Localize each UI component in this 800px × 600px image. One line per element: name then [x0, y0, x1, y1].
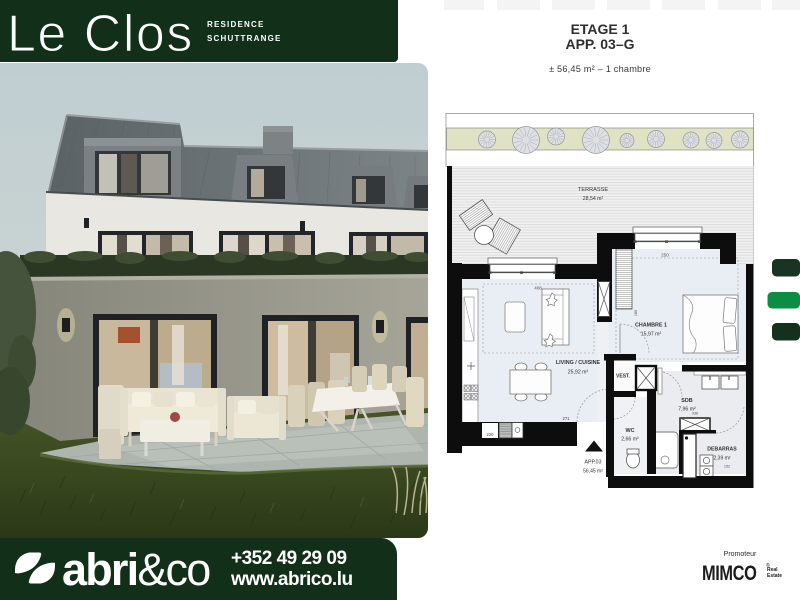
svg-text:220: 220: [487, 432, 495, 437]
svg-text:DEBARRAS: DEBARRAS: [707, 447, 737, 453]
svg-text:408: 408: [534, 286, 542, 291]
svg-text:TERRASSE: TERRASSE: [578, 187, 608, 193]
svg-text:SDB: SDB: [681, 398, 692, 404]
svg-text:APP.03: APP.03: [585, 460, 602, 466]
svg-text:CHAMBRE 1: CHAMBRE 1: [635, 323, 667, 329]
svg-text:VEST.: VEST.: [616, 374, 631, 380]
svg-text:28,54 m²: 28,54 m²: [583, 196, 604, 202]
svg-text:336: 336: [692, 412, 698, 416]
svg-text:15,97 m²: 15,97 m²: [641, 332, 662, 338]
svg-text:152: 152: [724, 465, 730, 469]
svg-text:25,92 m²: 25,92 m²: [568, 370, 589, 376]
svg-text:WC: WC: [626, 428, 635, 434]
svg-text:LIVING / CUISINE: LIVING / CUISINE: [556, 360, 601, 366]
svg-text:2,66 m²: 2,66 m²: [621, 437, 639, 443]
svg-text:2,39 m²: 2,39 m²: [714, 456, 731, 462]
svg-text:250: 250: [661, 253, 669, 258]
svg-text:160: 160: [634, 310, 638, 316]
svg-text:56,45 m²: 56,45 m²: [583, 469, 603, 475]
svg-text:271: 271: [563, 416, 571, 421]
